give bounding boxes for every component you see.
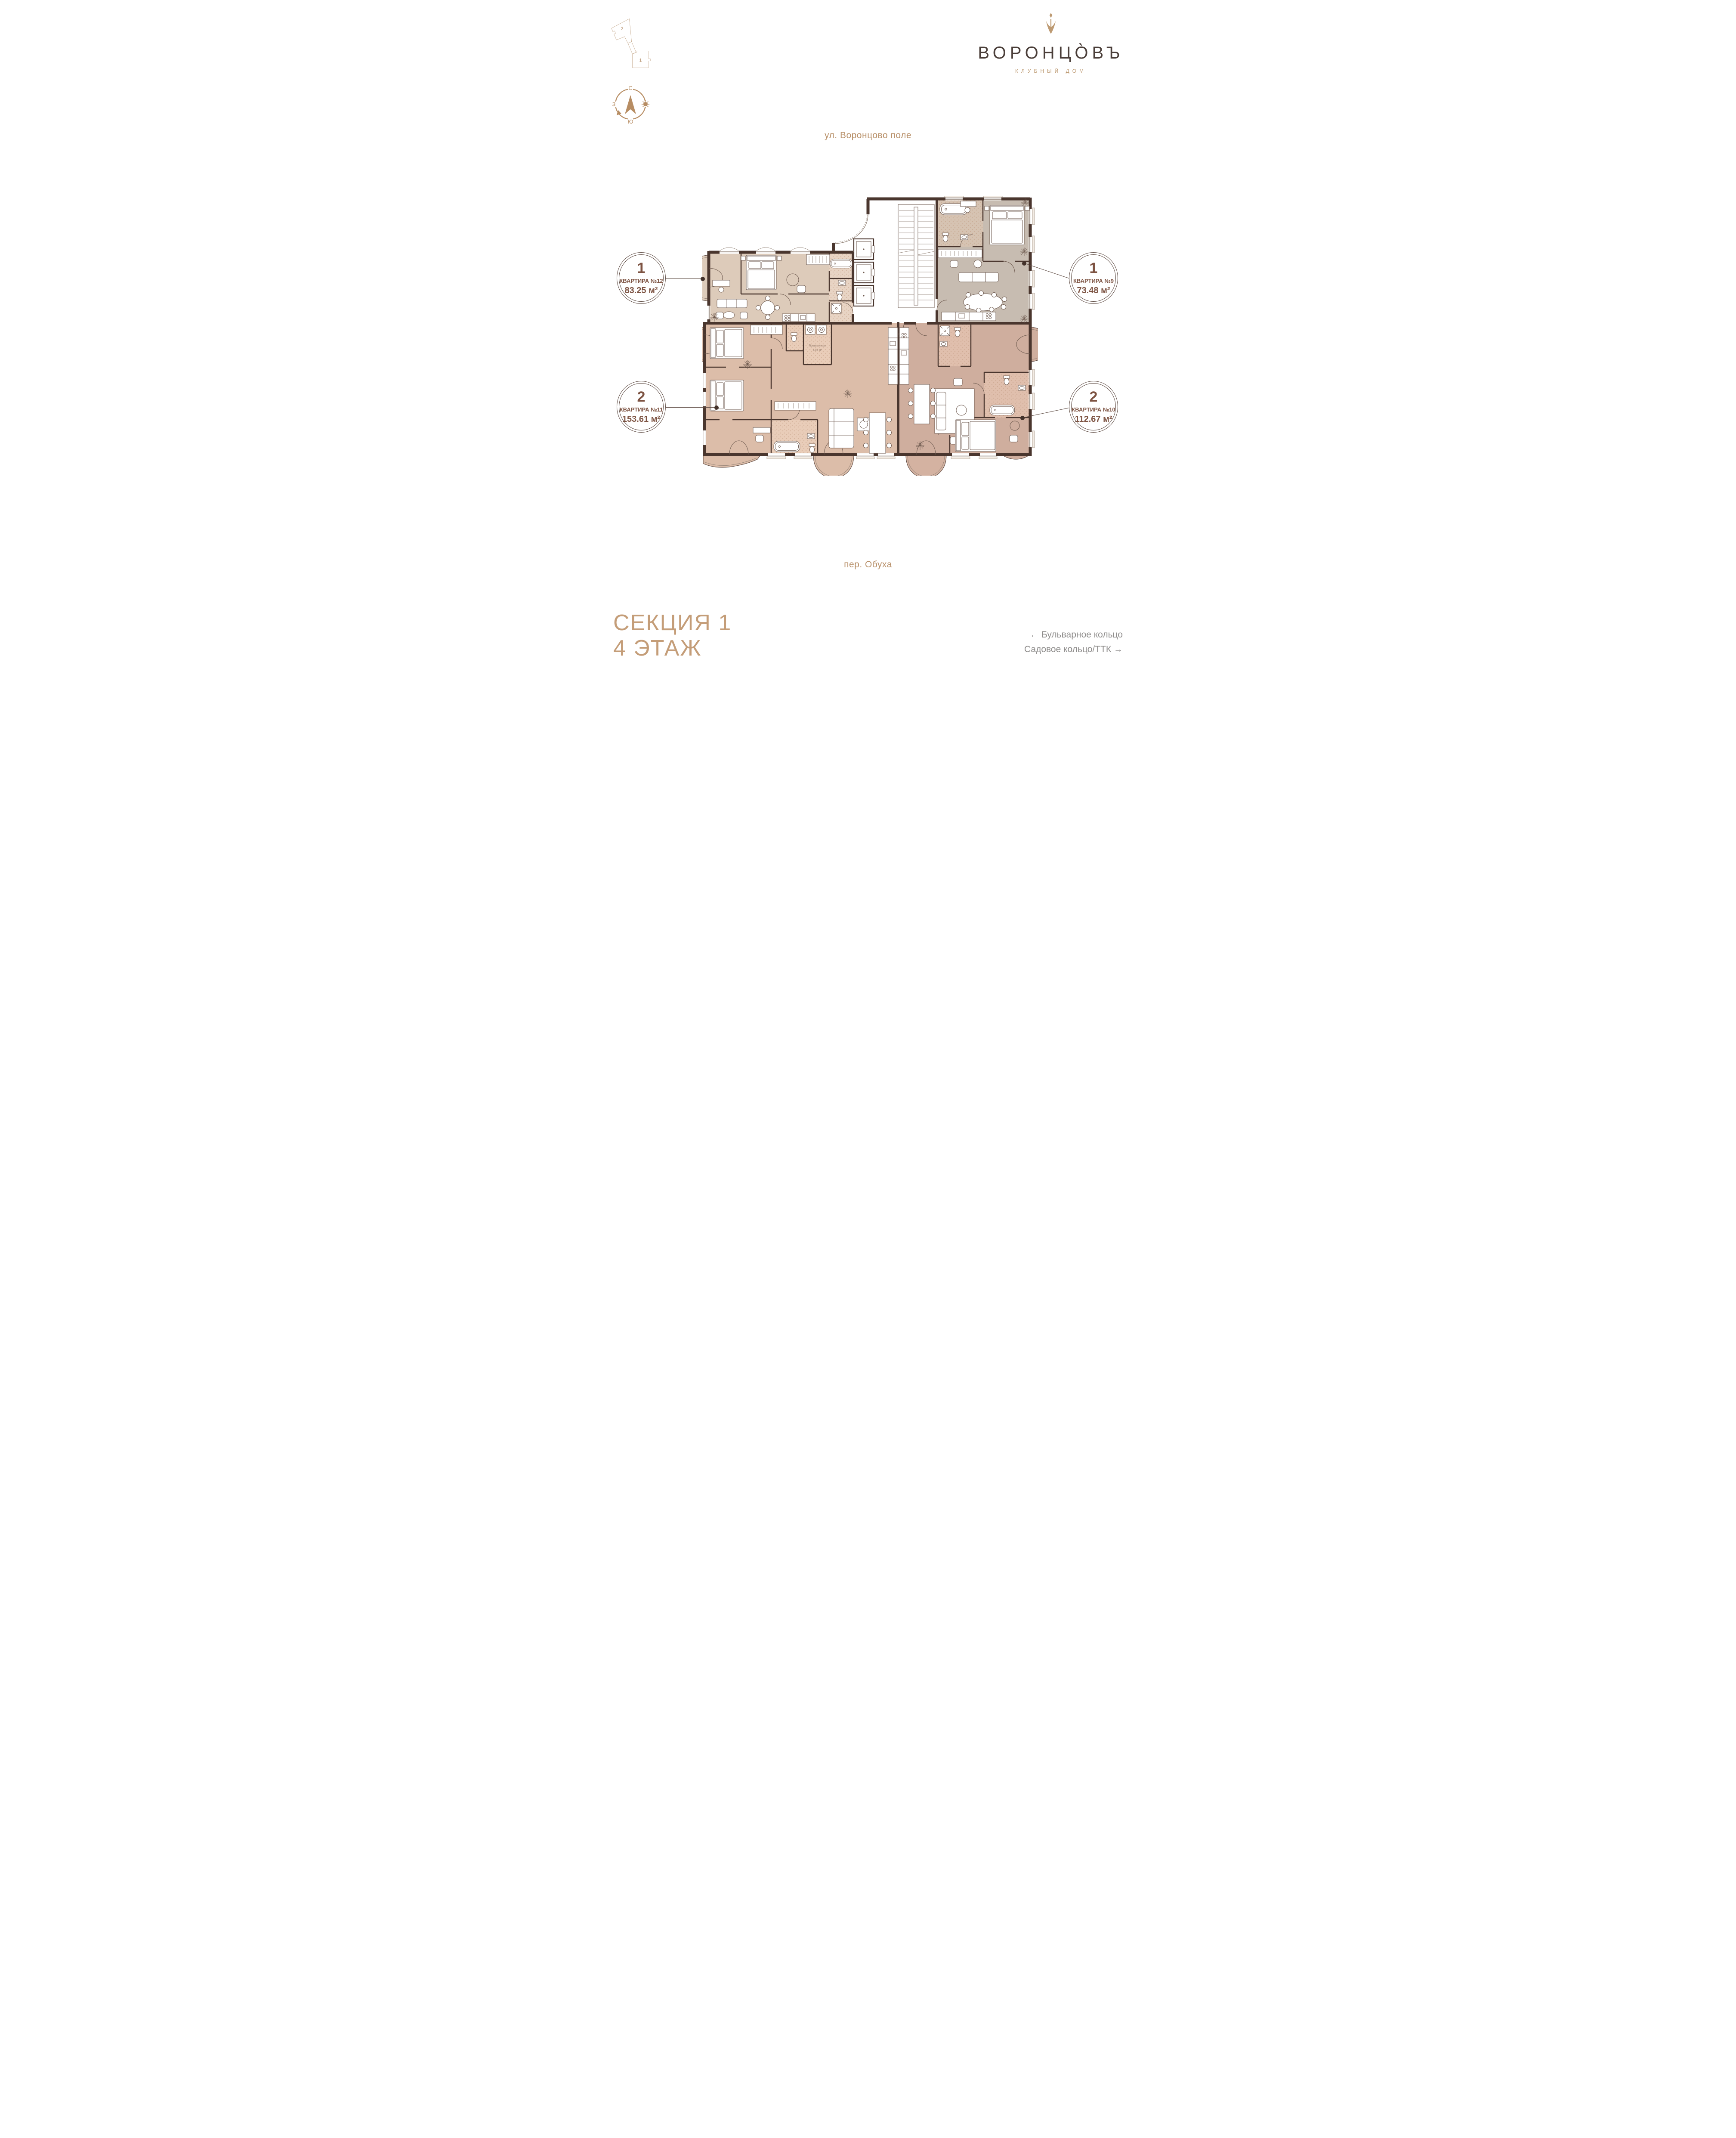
logo-ornament-icon: [1042, 13, 1060, 37]
section-floor-title: СЕКЦИЯ 1 4 ЭТАЖ: [613, 610, 732, 661]
compass-north-needle: [625, 95, 636, 114]
direction-boulevard-ring: ← Бульварное кольцо: [1024, 628, 1123, 642]
section-label: СЕКЦИЯ 1: [613, 610, 732, 636]
callout-apartment-9[interactable]: 1 КВАРТИРА №9 73.48 м²: [1069, 252, 1118, 304]
callout-line-apt12: [666, 278, 704, 279]
floor-plan: Постирочная 6.08 м²: [702, 196, 1038, 476]
apartment-9-area-label: 73.48 м²: [1077, 286, 1110, 296]
callout-apartment-12[interactable]: 1 КВАРТИРА №12 83.25 м²: [617, 252, 666, 304]
apartment-10-name: КВАРТИРА №10: [1072, 406, 1115, 413]
street-label-bottom: пер. Обуха: [593, 560, 1143, 570]
callout-dot-apt12: [701, 277, 705, 281]
apartment-11-area-label: 153.61 м²: [622, 415, 660, 424]
stair-core: [898, 204, 934, 308]
compass-north-label: С: [628, 85, 632, 91]
laundry-room-area: 6.08 м²: [812, 349, 822, 352]
callout-apartment-11[interactable]: 2 КВАРТИРА №11 153.61 м²: [617, 381, 666, 433]
apartment-9-rooms: 1: [1090, 261, 1098, 275]
elevator-icon: [854, 239, 874, 260]
callout-apartment-10[interactable]: 2 КВАРТИРА №10 112.67 м²: [1069, 381, 1118, 433]
brand-title: ВОРОНЦО̀ВЪ: [971, 43, 1131, 63]
elevator-bank: [854, 239, 874, 306]
apartment-11-rooms: 2: [637, 390, 646, 404]
callout-dot-apt9: [1022, 261, 1026, 266]
minimap-corridor-outline: [628, 42, 636, 54]
elevator-icon: [854, 285, 874, 306]
apartment-10-area-label: 112.67 м²: [1075, 415, 1112, 424]
direction-garden-ring: Садовое кольцо/ТТК →: [1024, 642, 1123, 657]
minimap-section-1-label: 1: [639, 58, 642, 63]
brand-subtitle: КЛУБНЫЙ ДОМ: [971, 68, 1131, 74]
apartment-12-name: КВАРТИРА №12: [619, 278, 663, 284]
apartment-12-area-label: 83.25 м²: [624, 286, 658, 296]
apartment-10-rooms: 2: [1090, 390, 1098, 404]
compass-icon: С З Ю: [611, 84, 650, 124]
floor-label: 4 ЭТАЖ: [613, 636, 732, 661]
street-label-top: ул. Воронцово поле: [593, 130, 1143, 141]
callout-dot-apt10: [1020, 416, 1025, 420]
laundry-room-label: Постирочная: [809, 344, 826, 347]
compass-west-label: З: [612, 101, 615, 108]
callout-line-apt11: [666, 407, 717, 408]
direction-labels: ← Бульварное кольцо Садовое кольцо/ТТК →: [1024, 628, 1123, 656]
floorplan-page: 2 1 С З Ю ВОРОНЦО̀ВЪ КЛУБНЫЙ: [593, 0, 1143, 678]
compass-south-label: Ю: [627, 118, 633, 124]
elevator-icon: [854, 262, 874, 283]
sun-icon: [642, 100, 649, 108]
apartment-9-name: КВАРТИРА №9: [1073, 278, 1114, 284]
building-minimap[interactable]: 2 1: [608, 17, 653, 71]
callout-dot-apt11: [714, 405, 719, 410]
brand-logo: ВОРОНЦО̀ВЪ КЛУБНЫЙ ДОМ: [971, 13, 1131, 74]
apartment-11-name: КВАРТИРА №11: [620, 406, 663, 413]
minimap-section-2-label: 2: [621, 26, 623, 31]
apartment-12-rooms: 1: [637, 261, 646, 275]
